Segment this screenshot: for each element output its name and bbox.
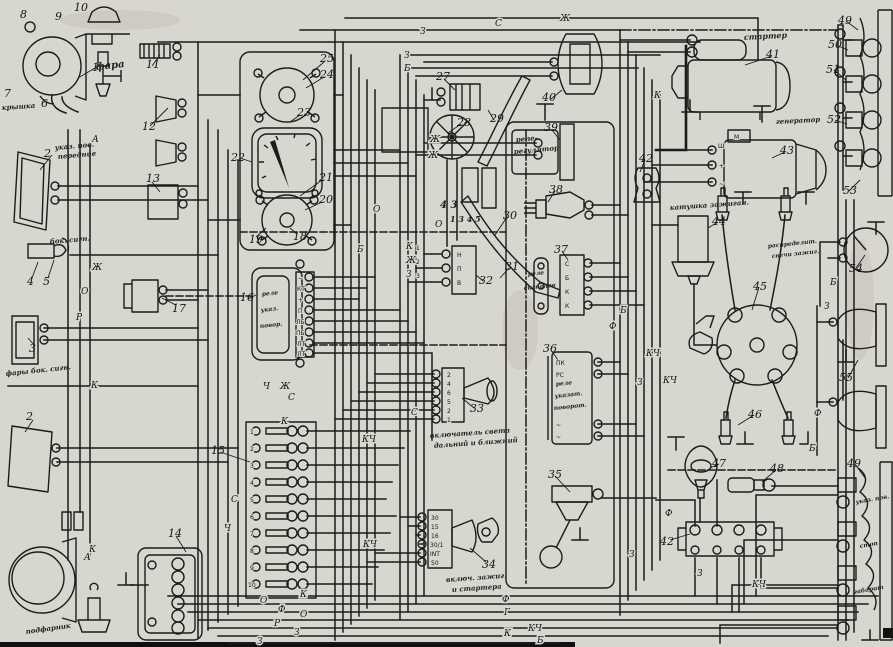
svg-text:1: 1 bbox=[416, 245, 420, 252]
svg-text:2: 2 bbox=[447, 372, 451, 379]
svg-text:Б: Б bbox=[808, 444, 816, 454]
light-switch-icon bbox=[432, 368, 497, 423]
svg-text:подфарник: подфарник bbox=[25, 621, 71, 636]
svg-text:КЧ: КЧ bbox=[361, 435, 377, 445]
svg-text:реле-: реле- bbox=[515, 133, 538, 144]
svg-text:КЧ: КЧ bbox=[645, 349, 661, 359]
svg-text:регулятор: регулятор bbox=[513, 143, 559, 156]
part-number: 31 bbox=[505, 260, 519, 273]
push-button-icon bbox=[437, 84, 480, 110]
hand-lever-icon bbox=[540, 486, 603, 568]
svg-text:О: О bbox=[81, 287, 89, 297]
part-number: 25 bbox=[319, 52, 334, 65]
part-number: 7 bbox=[4, 87, 11, 100]
part-number: 23 bbox=[296, 106, 311, 119]
part-number: 8 bbox=[20, 8, 27, 21]
svg-text:+: + bbox=[298, 297, 303, 304]
svg-text:Ф: Ф bbox=[665, 509, 673, 519]
svg-text:2: 2 bbox=[416, 259, 420, 266]
svg-text:З: З bbox=[406, 270, 412, 280]
part-number: 38 bbox=[549, 183, 563, 196]
part-number: 4 bbox=[26, 275, 34, 288]
svg-text:Г: Г bbox=[503, 608, 511, 618]
pressure-sensor-icon bbox=[524, 192, 593, 219]
svg-text:~: ~ bbox=[556, 422, 561, 429]
part-number: 19 bbox=[249, 233, 263, 246]
part-number: 33 bbox=[470, 402, 484, 415]
horn-icon bbox=[685, 446, 717, 498]
part-number: 21 bbox=[318, 171, 333, 184]
svg-text:реле: реле bbox=[527, 269, 544, 278]
part-number: 54 bbox=[849, 262, 863, 275]
part-number: 49 bbox=[846, 457, 861, 470]
svg-text:катушка зажиган.: катушка зажиган. bbox=[670, 197, 750, 212]
svg-text:крышка: крышка bbox=[2, 101, 36, 112]
part-number: 42 bbox=[638, 152, 653, 165]
svg-text:П: П bbox=[457, 266, 462, 273]
part-number: 41 bbox=[765, 48, 780, 61]
part-number: 29 bbox=[489, 112, 504, 125]
svg-text:7: 7 bbox=[250, 531, 254, 538]
part-number: 17 bbox=[172, 302, 186, 315]
part-number: 53 bbox=[843, 184, 857, 197]
svg-text:6: 6 bbox=[447, 390, 451, 397]
svg-text:1: 1 bbox=[447, 417, 451, 424]
svg-text:Ж: Ж bbox=[279, 382, 291, 392]
front-turn-lamp-icon bbox=[14, 152, 59, 230]
svg-text:Б: Б bbox=[565, 275, 569, 282]
svg-text:стартер: стартер bbox=[744, 30, 788, 42]
svg-text:Ф: Ф bbox=[502, 595, 510, 605]
svg-text:сигналов: сигналов bbox=[523, 282, 556, 292]
svg-text:и стартера: и стартера bbox=[452, 582, 503, 594]
part-number: 22 bbox=[230, 151, 245, 164]
svg-text:повор.: повор. bbox=[259, 321, 282, 330]
svg-text:З: З bbox=[257, 637, 263, 647]
svg-text:З: З bbox=[420, 27, 426, 37]
svg-text:Н: Н bbox=[457, 252, 462, 259]
part-number: 39 bbox=[544, 121, 558, 134]
svg-text:О: О bbox=[260, 596, 268, 606]
svg-text:С: С bbox=[411, 408, 418, 418]
svg-text:С: С bbox=[231, 495, 238, 505]
part-number: 36 bbox=[543, 342, 557, 355]
svg-text:В: В bbox=[457, 280, 461, 287]
svg-text:К: К bbox=[90, 381, 99, 391]
svg-text:ПК: ПК bbox=[556, 360, 566, 367]
svg-text:Р: Р bbox=[273, 619, 281, 629]
generator-icon bbox=[708, 130, 826, 198]
svg-text:П: П bbox=[298, 308, 303, 315]
svg-text:С: С bbox=[495, 19, 502, 29]
svg-text:С: С bbox=[565, 261, 569, 268]
svg-text:ПБ: ПБ bbox=[296, 330, 305, 337]
svg-text:О: О bbox=[373, 205, 381, 215]
part-number: 11 bbox=[146, 58, 160, 71]
svg-text:Ф: Ф bbox=[609, 322, 617, 332]
svg-text:реле: реле bbox=[555, 379, 572, 388]
svg-text:З: З bbox=[637, 378, 643, 388]
svg-text:К: К bbox=[565, 303, 570, 310]
fuse-block-icon bbox=[246, 422, 316, 598]
cab-lamp-icon bbox=[550, 34, 602, 94]
svg-text:З: З bbox=[404, 51, 410, 61]
part-number: 42 bbox=[659, 535, 674, 548]
svg-text:К: К bbox=[280, 417, 289, 427]
turn-lamp-icon bbox=[8, 426, 60, 492]
svg-text:ЛБ: ЛБ bbox=[296, 319, 305, 326]
svg-text:свечи зажиг.: свечи зажиг. bbox=[771, 248, 819, 260]
svg-text:указ. пов.: указ. пов. bbox=[854, 493, 890, 506]
scanned-wiring-diagram: 8 9 10 7 6 1 2 11 12 13 4 5 3 2 14 15 16… bbox=[0, 0, 893, 647]
svg-text:Б: Б bbox=[619, 306, 627, 316]
part-number: 5 bbox=[43, 275, 50, 288]
svg-text:К: К bbox=[653, 91, 662, 101]
svg-text:6: 6 bbox=[250, 514, 254, 521]
svg-text:Б: Б bbox=[356, 245, 364, 255]
part-number: 34 bbox=[482, 558, 496, 571]
svg-text:Б: Б bbox=[403, 64, 411, 74]
lamp-48-icon bbox=[728, 478, 775, 492]
svg-text:З: З bbox=[824, 302, 830, 312]
svg-text:КЧ: КЧ bbox=[362, 540, 378, 550]
svg-text:30: 30 bbox=[431, 515, 439, 522]
svg-text:ЛТ: ЛТ bbox=[297, 351, 306, 358]
svg-text:К: К bbox=[299, 590, 308, 600]
svg-text:50: 50 bbox=[431, 560, 439, 567]
svg-text:8: 8 bbox=[250, 548, 254, 555]
svg-text:Ж: Ж bbox=[559, 14, 571, 24]
instrument-cluster bbox=[240, 52, 334, 250]
switch-box-icon bbox=[148, 185, 187, 219]
svg-text:К: К bbox=[503, 629, 512, 639]
junction-block-icon bbox=[678, 522, 782, 556]
svg-text:РС: РС bbox=[556, 372, 564, 379]
svg-text:А: А bbox=[83, 553, 91, 563]
svg-text:Ж: Ж bbox=[91, 263, 103, 273]
part-number: 47 bbox=[711, 457, 726, 470]
svg-text:2: 2 bbox=[447, 408, 451, 415]
part-number: 32 bbox=[479, 274, 493, 287]
svg-text:Р: Р bbox=[75, 313, 83, 323]
svg-text:К: К bbox=[565, 289, 570, 296]
svg-text:З: З bbox=[629, 550, 635, 560]
svg-text:указ.: указ. bbox=[259, 305, 278, 314]
part-number: 49 bbox=[837, 14, 852, 27]
part-number: 28 bbox=[456, 116, 471, 129]
svg-text:~: ~ bbox=[719, 181, 724, 188]
ignition-coil-icon bbox=[672, 216, 714, 284]
part-number: 20 bbox=[318, 193, 333, 206]
svg-text:З: З bbox=[294, 628, 300, 638]
svg-text:ЛТ: ЛТ bbox=[297, 341, 306, 348]
part-number: 30 bbox=[503, 209, 517, 222]
svg-text:Ж: Ж bbox=[427, 151, 439, 161]
part-number: 24 bbox=[319, 68, 334, 81]
svg-text:+: + bbox=[719, 163, 724, 170]
svg-text:Ч: Ч bbox=[224, 524, 232, 534]
svg-text:Ф: Ф bbox=[278, 605, 286, 615]
svg-text:К: К bbox=[405, 242, 414, 252]
svg-text:Б: Б bbox=[536, 636, 544, 646]
part-number: 55 bbox=[839, 371, 853, 384]
svg-text:КЧ: КЧ bbox=[751, 580, 767, 590]
part-number: 12 bbox=[142, 120, 156, 133]
gauge-bottom-icon bbox=[256, 195, 318, 245]
svg-text:Ж: Ж bbox=[429, 135, 441, 145]
part-number: 40 bbox=[541, 91, 556, 104]
svg-text:5: 5 bbox=[250, 497, 254, 504]
horn-button-icon bbox=[634, 168, 660, 202]
connector-panel-icon bbox=[138, 548, 202, 640]
svg-text:2: 2 bbox=[250, 446, 254, 453]
component-numbers: 8 9 10 7 6 1 2 11 12 13 4 5 3 2 14 15 16… bbox=[4, 1, 863, 571]
part-number: 18 bbox=[293, 230, 307, 243]
svg-text:М: М bbox=[734, 134, 739, 141]
part-number: 51 bbox=[826, 63, 840, 76]
svg-text:О: О bbox=[300, 610, 308, 620]
part-number: 16 bbox=[240, 291, 254, 304]
part-number: 45 bbox=[752, 280, 767, 293]
lamp-socket-icons bbox=[156, 96, 186, 166]
svg-text:стоп: стоп bbox=[859, 540, 878, 550]
svg-text:КТ: КТ bbox=[297, 286, 305, 293]
svg-text:3: 3 bbox=[416, 273, 420, 280]
svg-text:16: 16 bbox=[431, 533, 439, 540]
ground-symbols bbox=[118, 88, 884, 640]
svg-text:бок. сигн.: бок. сигн. bbox=[49, 234, 90, 246]
part-number: 15 bbox=[211, 444, 225, 457]
part-number: 27 bbox=[435, 70, 450, 83]
part-number: 6 bbox=[41, 97, 48, 110]
svg-text:9: 9 bbox=[250, 565, 254, 572]
stoplight-switch-icon bbox=[124, 280, 167, 312]
svg-text:Ч: Ч bbox=[263, 382, 271, 392]
part-number: 52 bbox=[827, 113, 841, 126]
part-number: 37 bbox=[554, 243, 568, 256]
headlamp-bottom-icon bbox=[9, 512, 83, 622]
switch-input-numbers: 1 2 3 bbox=[416, 245, 420, 280]
svg-text:1: 1 bbox=[250, 429, 254, 436]
svg-text:4: 4 bbox=[250, 480, 254, 487]
svg-text:КЧ: КЧ bbox=[662, 376, 678, 386]
svg-text:реле: реле bbox=[261, 289, 278, 298]
part-number: 13 bbox=[146, 172, 160, 185]
svg-text:О: О bbox=[435, 220, 443, 230]
part-number: 48 bbox=[769, 462, 784, 475]
svg-text:4: 4 bbox=[447, 381, 451, 388]
part-number: 2 bbox=[25, 410, 33, 423]
part-number: 43 bbox=[779, 144, 794, 157]
part-number: 3 bbox=[29, 342, 36, 355]
svg-text:Б: Б bbox=[829, 278, 837, 288]
part-number: 44 bbox=[711, 215, 726, 228]
svg-text:Ш: Ш bbox=[718, 143, 724, 150]
part-number: 50 bbox=[828, 38, 842, 51]
svg-text:С: С bbox=[288, 393, 295, 403]
svg-text:~: ~ bbox=[556, 434, 561, 441]
svg-text:10: 10 bbox=[248, 582, 256, 589]
svg-text:указат.: указат. bbox=[553, 390, 582, 400]
svg-text:4 3: 4 3 bbox=[440, 200, 457, 211]
part-number: 46 bbox=[747, 408, 762, 421]
marker-lamp-icon bbox=[78, 583, 110, 632]
svg-text:3: 3 bbox=[250, 463, 254, 470]
svg-text:КЧ: КЧ bbox=[527, 624, 543, 634]
part-number: 35 bbox=[548, 468, 562, 481]
part-number: 14 bbox=[168, 527, 182, 540]
part-number: 2 bbox=[43, 147, 51, 160]
svg-text:30/1: 30/1 bbox=[430, 542, 444, 549]
svg-text:поворот.: поворот. bbox=[553, 402, 587, 412]
svg-text:INT: INT bbox=[430, 551, 440, 558]
svg-text:1 3 4 5: 1 3 4 5 bbox=[450, 214, 481, 224]
svg-text:Ф: Ф bbox=[814, 409, 822, 419]
svg-text:5: 5 bbox=[447, 399, 451, 406]
svg-text:генератор: генератор bbox=[776, 115, 821, 126]
part-number: 9 bbox=[55, 10, 62, 23]
svg-text:15: 15 bbox=[431, 524, 439, 531]
svg-text:З: З bbox=[697, 569, 703, 579]
svg-text:−: − bbox=[298, 275, 303, 282]
part-number: 10 bbox=[74, 1, 88, 14]
